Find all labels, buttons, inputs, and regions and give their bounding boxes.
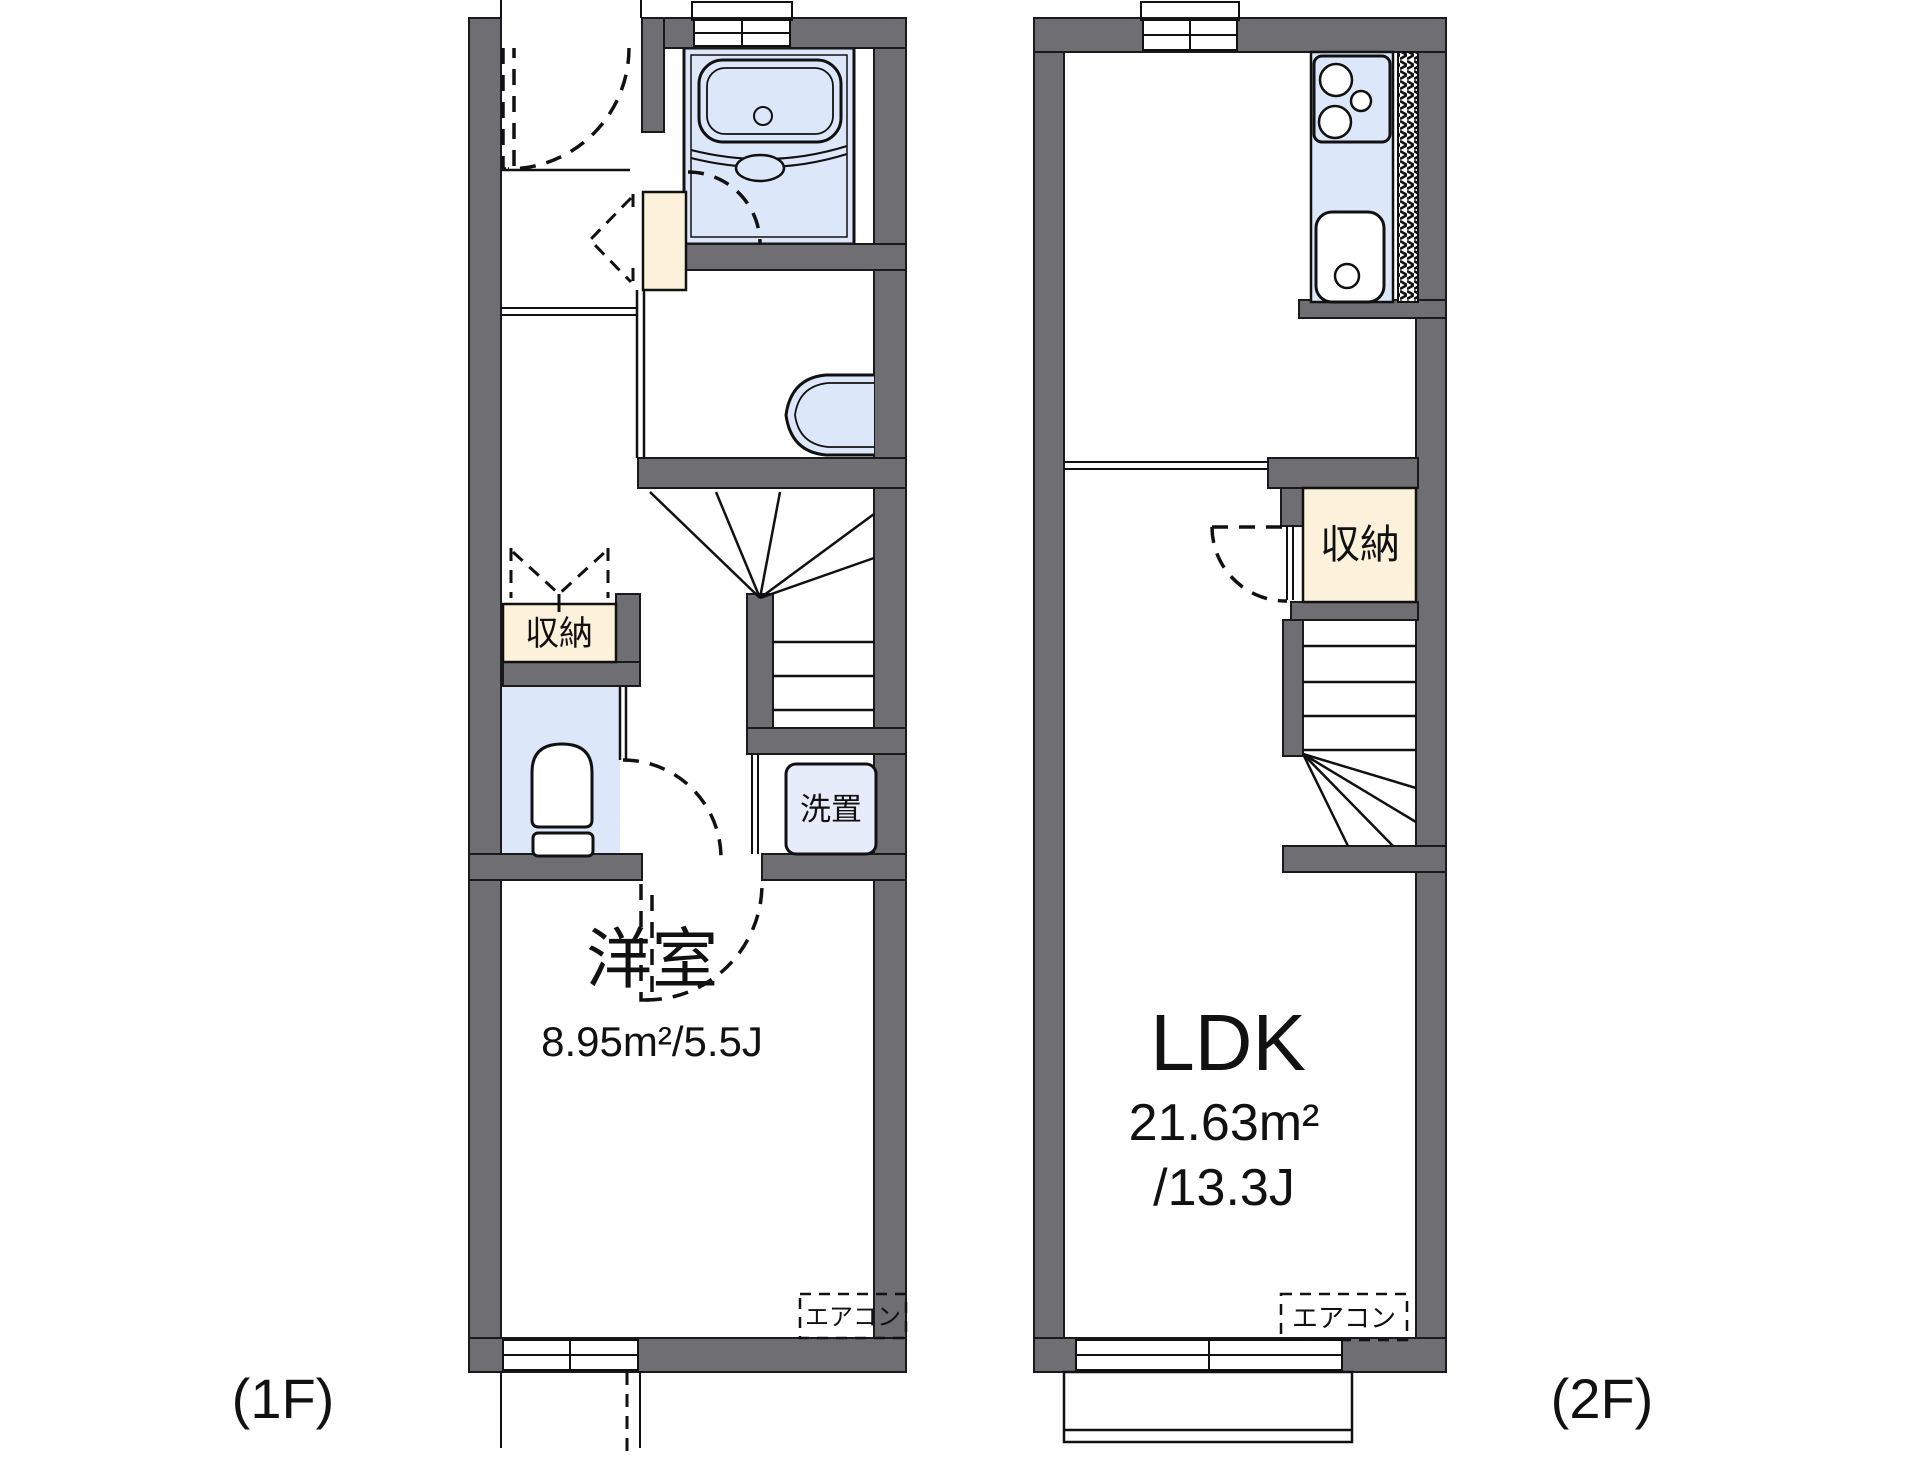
- storage-label: 収納: [525, 615, 593, 653]
- balcony: [1064, 1372, 1352, 1442]
- wall-right: [874, 18, 906, 1372]
- wall-top: [1034, 18, 1446, 52]
- room-area-jo: /13.3J: [1153, 1159, 1295, 1217]
- stair-center-post: [747, 594, 773, 744]
- floor-plan-drawing: 収納 洗置 洋室 8.95m²/5.5J エアコン: [0, 0, 1920, 1459]
- aircon-label: エアコン: [805, 1304, 901, 1331]
- sink-drain: [1335, 264, 1359, 288]
- wall-right: [1416, 18, 1446, 1372]
- entrance-door-swing-arc: [508, 48, 629, 169]
- closet-door-swing-arc: [1212, 527, 1287, 601]
- aircon-label: エアコン: [1292, 1303, 1396, 1333]
- wall-below-storage: [1291, 602, 1418, 620]
- toilet-tank: [533, 833, 593, 856]
- entrance-door-leaf: [503, 48, 514, 169]
- shoe-cabinet: [643, 192, 686, 290]
- wall-room-top-left: [469, 854, 642, 880]
- wall-mid: [1268, 458, 1418, 488]
- laundry-label: 洗置: [800, 792, 862, 827]
- wall-entry-stub: [642, 18, 664, 132]
- wall-below-stairs: [747, 728, 906, 754]
- toilet-door-swing-arc: [623, 760, 721, 858]
- stair-side-wall: [1283, 620, 1303, 756]
- floor-plan-page: 収納 洗置 洋室 8.95m²/5.5J エアコン: [0, 0, 1920, 1459]
- room-area-label: 8.95m²/5.5J: [541, 1018, 763, 1065]
- wall-below-storage: [503, 662, 640, 686]
- stair-fan-line: [650, 492, 760, 598]
- washbasin: [786, 375, 874, 455]
- duct-hatch-strip: [1398, 52, 1418, 302]
- wall-below-bath: [684, 244, 906, 270]
- floor1-plan: 収納 洗置 洋室 8.95m²/5.5J エアコン: [469, 0, 906, 1457]
- stove-burner: [1320, 64, 1352, 96]
- toilet-icon: [532, 744, 592, 827]
- stair-fan-line: [716, 492, 760, 598]
- wall-below-stairs: [1283, 846, 1446, 872]
- bathtub-drain: [754, 107, 772, 125]
- bifold-door-leaves: [590, 198, 631, 282]
- wall-closet-stub: [1281, 488, 1303, 526]
- wall-left: [1034, 18, 1064, 1372]
- room-area-m2: 21.63m²: [1129, 1094, 1320, 1152]
- stair-fan-line: [760, 492, 780, 598]
- stove-burner: [1319, 106, 1351, 138]
- room-label: LDK: [1150, 998, 1306, 1087]
- floor2-plan: 収納 LDK 21.63m² /13.3J エアコン: [1034, 2, 1446, 1442]
- floor1-label: (1F): [232, 1367, 335, 1430]
- wall-above-stairs: [638, 458, 906, 488]
- room-label: 洋室: [586, 922, 718, 996]
- stove-burner: [1351, 91, 1371, 111]
- bathtub: [699, 60, 841, 142]
- bath-bowl: [736, 155, 784, 181]
- floor2-label: (2F): [1551, 1367, 1654, 1430]
- stair-fan-line: [760, 558, 874, 598]
- wall-room-top-right: [762, 854, 906, 880]
- bifold-door-leaves: [513, 552, 605, 594]
- wall-left: [469, 18, 501, 1372]
- storage-label: 収納: [1320, 523, 1400, 567]
- stair-fan-line: [760, 514, 874, 598]
